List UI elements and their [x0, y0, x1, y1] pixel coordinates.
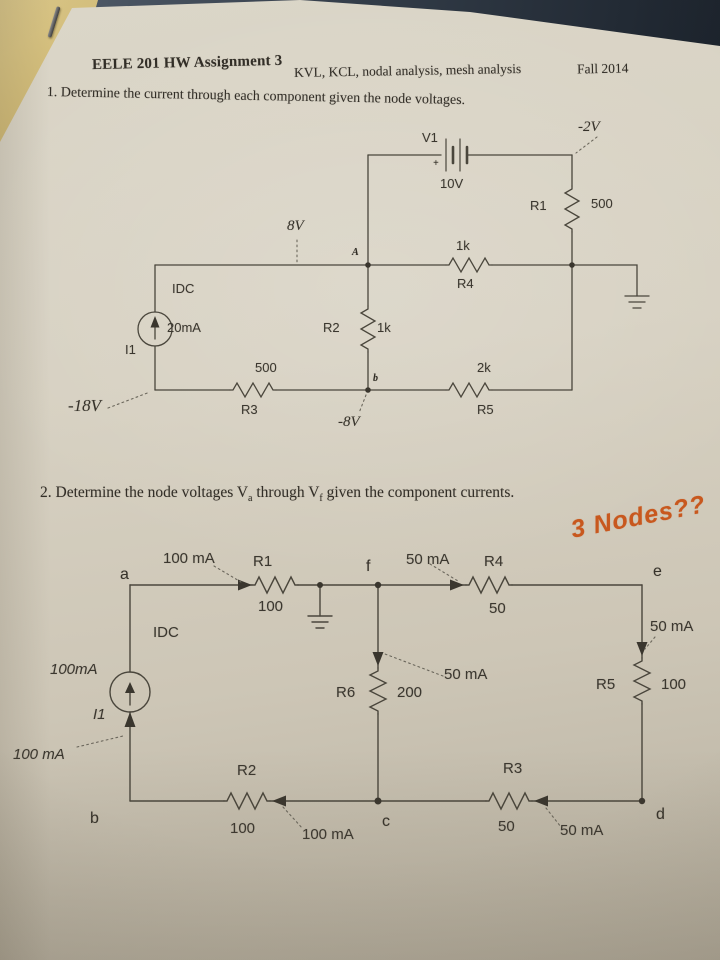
c2-idc-label: IDC: [153, 624, 179, 641]
c2-i1-current-label: 100 mA: [13, 746, 65, 763]
c1-r1-label: R1: [530, 198, 547, 213]
c2-r4-label: R4: [484, 553, 503, 570]
c2-r3-label: R3: [503, 760, 522, 777]
c1-i1-value: 20mA: [167, 320, 201, 335]
c1-resistor-r2-icon: [361, 306, 375, 352]
c2-r3-value: 50: [498, 818, 515, 835]
c1-r3-value: 500: [255, 360, 277, 375]
c2-current-leaders: [77, 564, 655, 829]
homework-paper: EELE 201 HW Assignment 3 KVL, KCL, nodal…: [0, 0, 720, 960]
c2-node-dots: [317, 582, 645, 805]
c2-r1-current-label: 100 mA: [163, 550, 215, 567]
c2-r6-label: R6: [336, 684, 355, 701]
c2-r1-value: 100: [258, 598, 283, 615]
c2-node-e-label: e: [653, 563, 662, 581]
c2-resistor-r1-icon: [252, 577, 298, 593]
photo-scene: EELE 201 HW Assignment 3 KVL, KCL, nodal…: [0, 0, 720, 960]
c2-r5-current-label: 50 mA: [650, 618, 693, 635]
c2-r4-current-label: 50 mA: [406, 551, 449, 568]
c1-node-voltage-8v: 8V: [287, 218, 304, 235]
c1-r2-label: R2: [323, 320, 340, 335]
c1-r1-value: 500: [591, 196, 613, 211]
c2-resistor-r3-icon: [486, 793, 532, 809]
c2-resistor-r4-icon: [466, 577, 512, 593]
c2-r5-label: R5: [596, 676, 615, 693]
c2-node-d-label: d: [656, 806, 665, 824]
c2-r1-label: R1: [253, 553, 272, 570]
c1-wires: [155, 155, 637, 390]
c2-i1-value: 100mA: [50, 661, 98, 678]
c2-r5-value: 100: [661, 676, 686, 693]
c1-r2-value: 1k: [377, 320, 391, 335]
c1-battery-plus-sign: +: [433, 158, 439, 169]
c1-resistor-r4-icon: [446, 258, 492, 272]
c2-node-a-label: a: [120, 566, 129, 584]
c1-node-b-label: b: [373, 373, 378, 384]
c2-node-c-label: c: [382, 813, 390, 831]
c1-r4-label: R4: [457, 276, 474, 291]
c2-r2-label: R2: [237, 762, 256, 779]
c1-node-voltage-minus18v: -18V: [68, 396, 101, 416]
c2-current-arrows: [238, 580, 648, 807]
c1-resistor-r1-icon: [565, 186, 579, 232]
c2-wires: [130, 585, 642, 801]
c2-current-source-icon: [110, 672, 150, 727]
c2-node-f-label: f: [366, 558, 370, 576]
circuit-schematics: [0, 0, 720, 960]
c1-battery-icon: [446, 139, 467, 171]
c1-resistor-r3-icon: [230, 383, 276, 397]
c1-idc-label: IDC: [172, 281, 194, 296]
c1-r3-label: R3: [241, 402, 258, 417]
c2-r2-value: 100: [230, 820, 255, 837]
c1-node-voltage-minus8v: -8V: [338, 414, 360, 431]
c1-resistor-r5-icon: [446, 383, 492, 397]
c1-node-voltage-minus2v: -2V: [578, 119, 600, 136]
c2-r6-current-label: 50 mA: [444, 666, 487, 683]
c1-voltage-leaders: [108, 137, 597, 413]
c2-r4-value: 50: [489, 600, 506, 617]
c2-resistor-r6-icon: [370, 668, 386, 714]
c1-ground-icon: [625, 296, 649, 308]
c1-v1-value: 10V: [440, 176, 463, 191]
c2-r6-value: 200: [397, 684, 422, 701]
c2-node-b-label: b: [90, 810, 99, 828]
c2-i1-label: I1: [93, 706, 106, 723]
c1-node-a-label: A: [352, 247, 359, 258]
c1-i1-label: I1: [125, 342, 136, 357]
c2-r3-current-label: 50 mA: [560, 822, 603, 839]
c2-resistor-r5-icon: [634, 658, 650, 704]
c1-r4-value: 1k: [456, 238, 470, 253]
c2-ground-icon: [308, 616, 332, 628]
c1-r5-label: R5: [477, 402, 494, 417]
c1-r5-value: 2k: [477, 360, 491, 375]
c2-r2-current-label: 100 mA: [302, 826, 354, 843]
c1-v1-label: V1: [422, 130, 438, 145]
c2-resistor-r2-icon: [224, 793, 270, 809]
